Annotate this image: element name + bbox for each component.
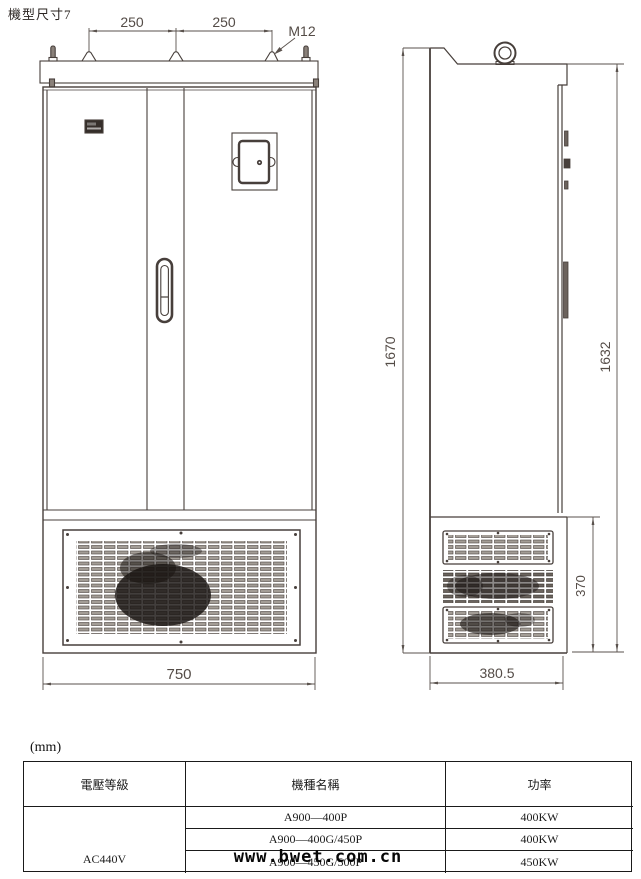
voltage-class-cell: AC440V: [24, 807, 186, 873]
model-cell: A900—400P: [186, 807, 446, 829]
dim-1632: 1632: [597, 341, 613, 372]
dim-250-right: 250: [212, 14, 236, 30]
lifting-eye-icon: [495, 43, 516, 65]
door-handle-icon: [157, 259, 172, 322]
col-header-model: 機種名稱: [186, 762, 446, 807]
keypad-panel: [232, 133, 277, 190]
col-header-voltage: 電壓等級: [24, 762, 186, 807]
front-view: [40, 46, 319, 653]
door-hinge-icon: [564, 131, 571, 318]
front-grille: [63, 530, 300, 645]
col-header-power: 功率: [446, 762, 633, 807]
side-grille-middle: [443, 570, 553, 603]
side-grille-bottom: [443, 607, 553, 643]
side-grille-top: [443, 531, 553, 564]
cabinet-dimension-drawing: 250 250 M12 750: [0, 0, 641, 735]
lifting-bar: [40, 61, 318, 83]
lifting-lug-icon: [82, 52, 278, 61]
pin-icon: [314, 79, 319, 87]
power-cell: 400KW: [446, 807, 633, 829]
pin-icon: [50, 79, 55, 87]
power-cell: 400KW: [446, 829, 633, 851]
page: 機型尺寸7: [0, 0, 641, 879]
watermark: www.bwet.com.cn: [213, 847, 423, 867]
dim-750: 750: [166, 666, 191, 683]
dim-m12-label: M12: [288, 23, 315, 39]
side-view: [430, 43, 570, 654]
dim-370: 370: [573, 575, 588, 597]
units-label: (mm): [30, 740, 61, 756]
power-cell: 450KW: [446, 851, 633, 873]
dim-250-left: 250: [120, 14, 144, 30]
dim-1670: 1670: [382, 336, 398, 367]
dim-380-5: 380.5: [479, 665, 514, 681]
brand-logo: [85, 120, 103, 133]
